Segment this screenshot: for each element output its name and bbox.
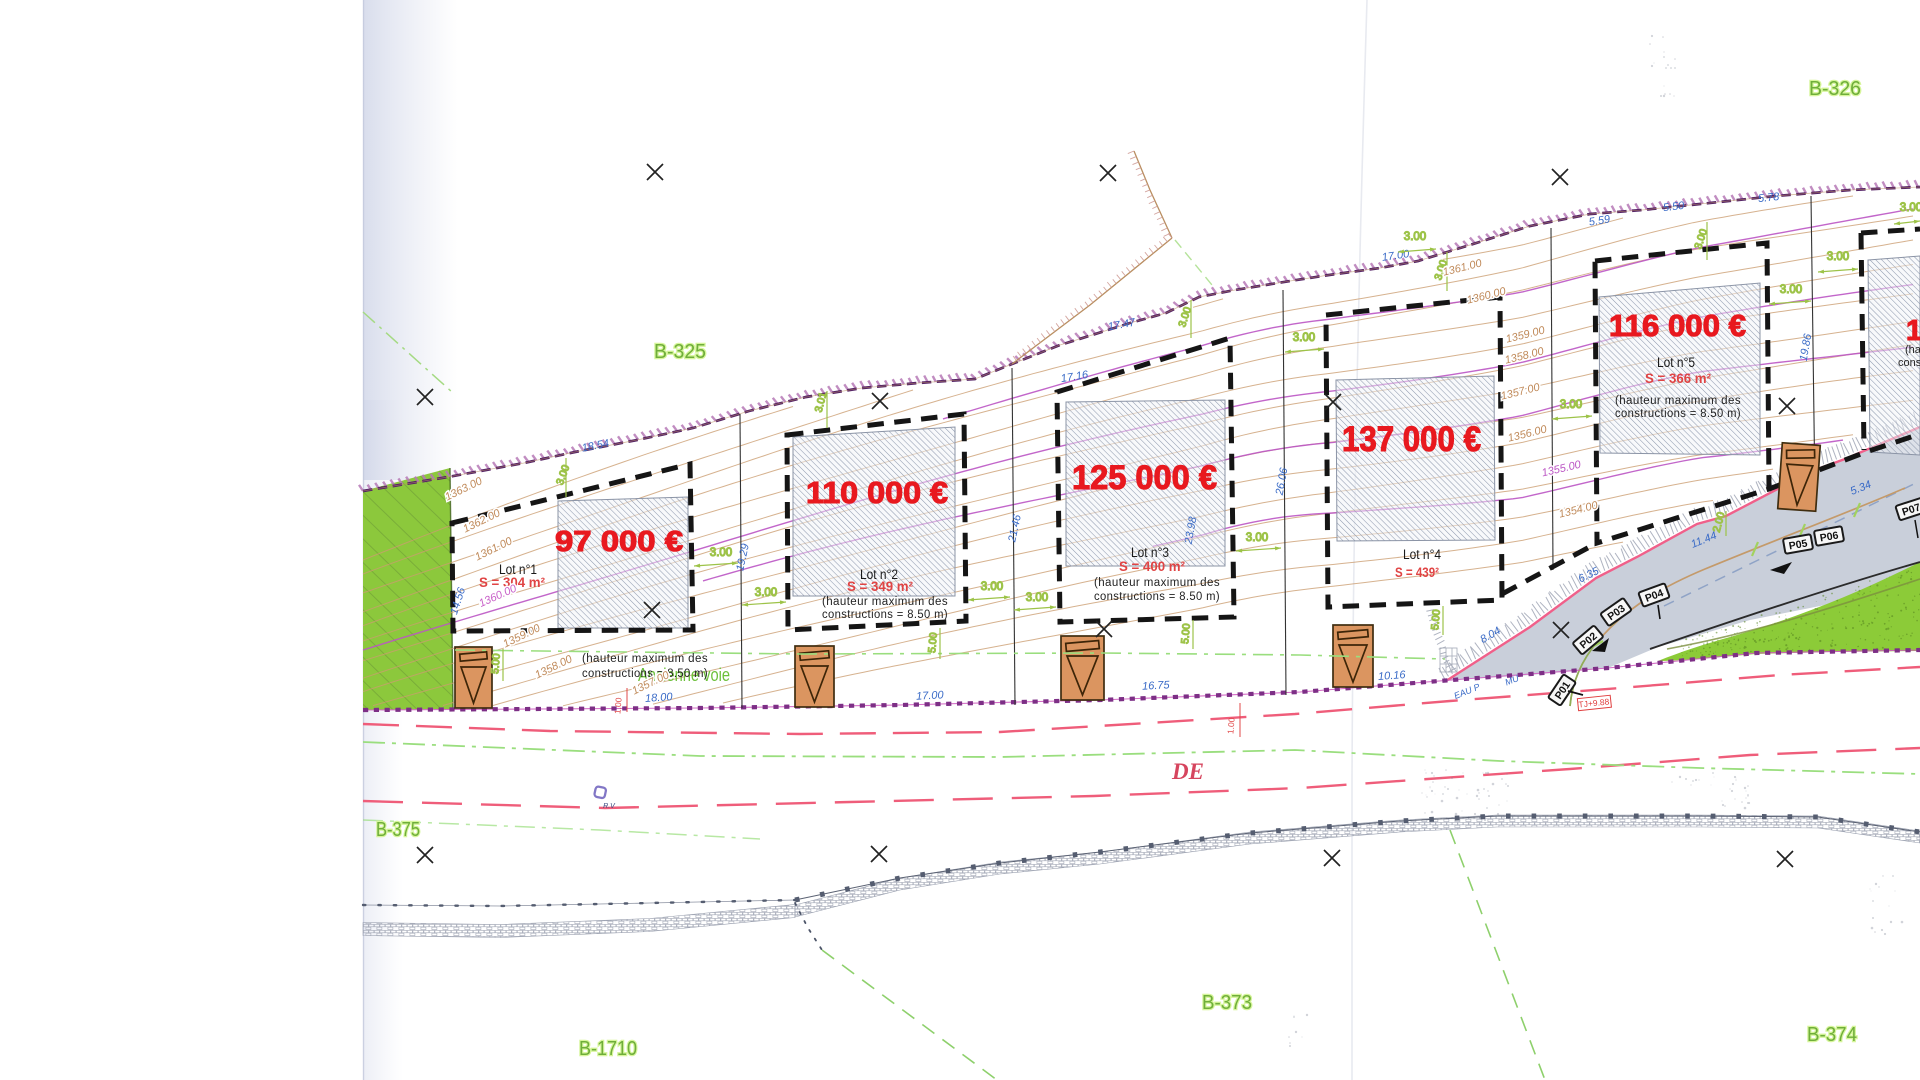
- svg-text:constructions = 8.50 m): constructions = 8.50 m): [822, 609, 948, 621]
- svg-text:(hauteur maximum des: (hauteur maximum des: [822, 596, 948, 608]
- svg-text:16.75: 16.75: [1142, 679, 1171, 692]
- svg-text:S = 439²: S = 439²: [1395, 564, 1439, 580]
- svg-text:5.00: 5.00: [1429, 609, 1443, 631]
- svg-text:B-1710: B-1710: [579, 1038, 637, 1060]
- svg-text:18.00: 18.00: [645, 691, 674, 705]
- svg-text:S = 400 m²: S = 400 m²: [1119, 558, 1185, 574]
- svg-text:(hauteur maximum des: (hauteur maximum des: [582, 653, 708, 665]
- svg-text:97 000 €: 97 000 €: [555, 526, 683, 558]
- svg-text:3.00: 3.00: [981, 581, 1003, 593]
- svg-text:B-374: B-374: [1807, 1024, 1857, 1046]
- svg-text:(hauteur maximum des: (hauteur maximum des: [1094, 577, 1220, 589]
- svg-text:3.00: 3.00: [1560, 399, 1582, 411]
- svg-text:B-326: B-326: [1809, 78, 1861, 100]
- svg-text:constructions = 8.50 m): constructions = 8.50 m): [582, 668, 708, 680]
- svg-text:10.16: 10.16: [1378, 669, 1407, 683]
- svg-text:Lot n°5: Lot n°5: [1657, 355, 1695, 370]
- svg-text:5.00: 5.00: [1179, 623, 1193, 645]
- svg-text:116 000 €: 116 000 €: [1609, 308, 1746, 343]
- svg-text:B-325: B-325: [654, 341, 706, 363]
- svg-text:B-375: B-375: [376, 819, 420, 841]
- svg-text:1.00: 1.00: [1225, 717, 1236, 735]
- svg-text:5.78: 5.78: [1757, 191, 1780, 205]
- svg-text:S = 366 m²: S = 366 m²: [1645, 370, 1711, 386]
- svg-text:R.V: R.V: [603, 803, 616, 810]
- svg-text:3.00: 3.00: [1404, 231, 1426, 243]
- svg-text:constructions = 8.50 m): constructions = 8.50 m): [1094, 591, 1220, 603]
- svg-text:3.00: 3.00: [710, 547, 732, 559]
- svg-text:137 000 €: 137 000 €: [1342, 420, 1481, 459]
- svg-text:constructions = 8.50 m): constructions = 8.50 m): [1615, 408, 1741, 420]
- svg-text:1.00: 1.00: [612, 697, 623, 715]
- svg-text:3.00: 3.00: [1293, 332, 1315, 344]
- svg-text:17.00: 17.00: [916, 689, 945, 702]
- svg-text:5.00: 5.00: [926, 632, 940, 654]
- svg-text:Lot n°4: Lot n°4: [1403, 547, 1441, 562]
- svg-text:3.00: 3.00: [1900, 202, 1920, 214]
- svg-text:3.00: 3.00: [755, 587, 777, 599]
- svg-text:B-373: B-373: [1202, 992, 1252, 1014]
- svg-text:3.00: 3.00: [1827, 251, 1849, 263]
- svg-text:S = 349 m²: S = 349 m²: [847, 578, 913, 594]
- svg-text:3.00: 3.00: [1780, 284, 1802, 296]
- svg-text:(hauteur maximum des: (hauteur maximum des: [1615, 395, 1741, 407]
- svg-text:DE: DE: [1171, 759, 1204, 784]
- svg-text:125 000 €: 125 000 €: [1072, 459, 1217, 497]
- svg-text:110 000 €: 110 000 €: [806, 475, 948, 510]
- svg-text:3.00: 3.00: [1026, 592, 1048, 604]
- svg-text:3.00: 3.00: [1246, 532, 1268, 544]
- svg-text:5.00: 5.00: [489, 653, 503, 675]
- svg-text:(haut: (haut: [1905, 344, 1920, 356]
- svg-text:11: 11: [1906, 315, 1920, 347]
- svg-text:constr: constr: [1898, 357, 1920, 369]
